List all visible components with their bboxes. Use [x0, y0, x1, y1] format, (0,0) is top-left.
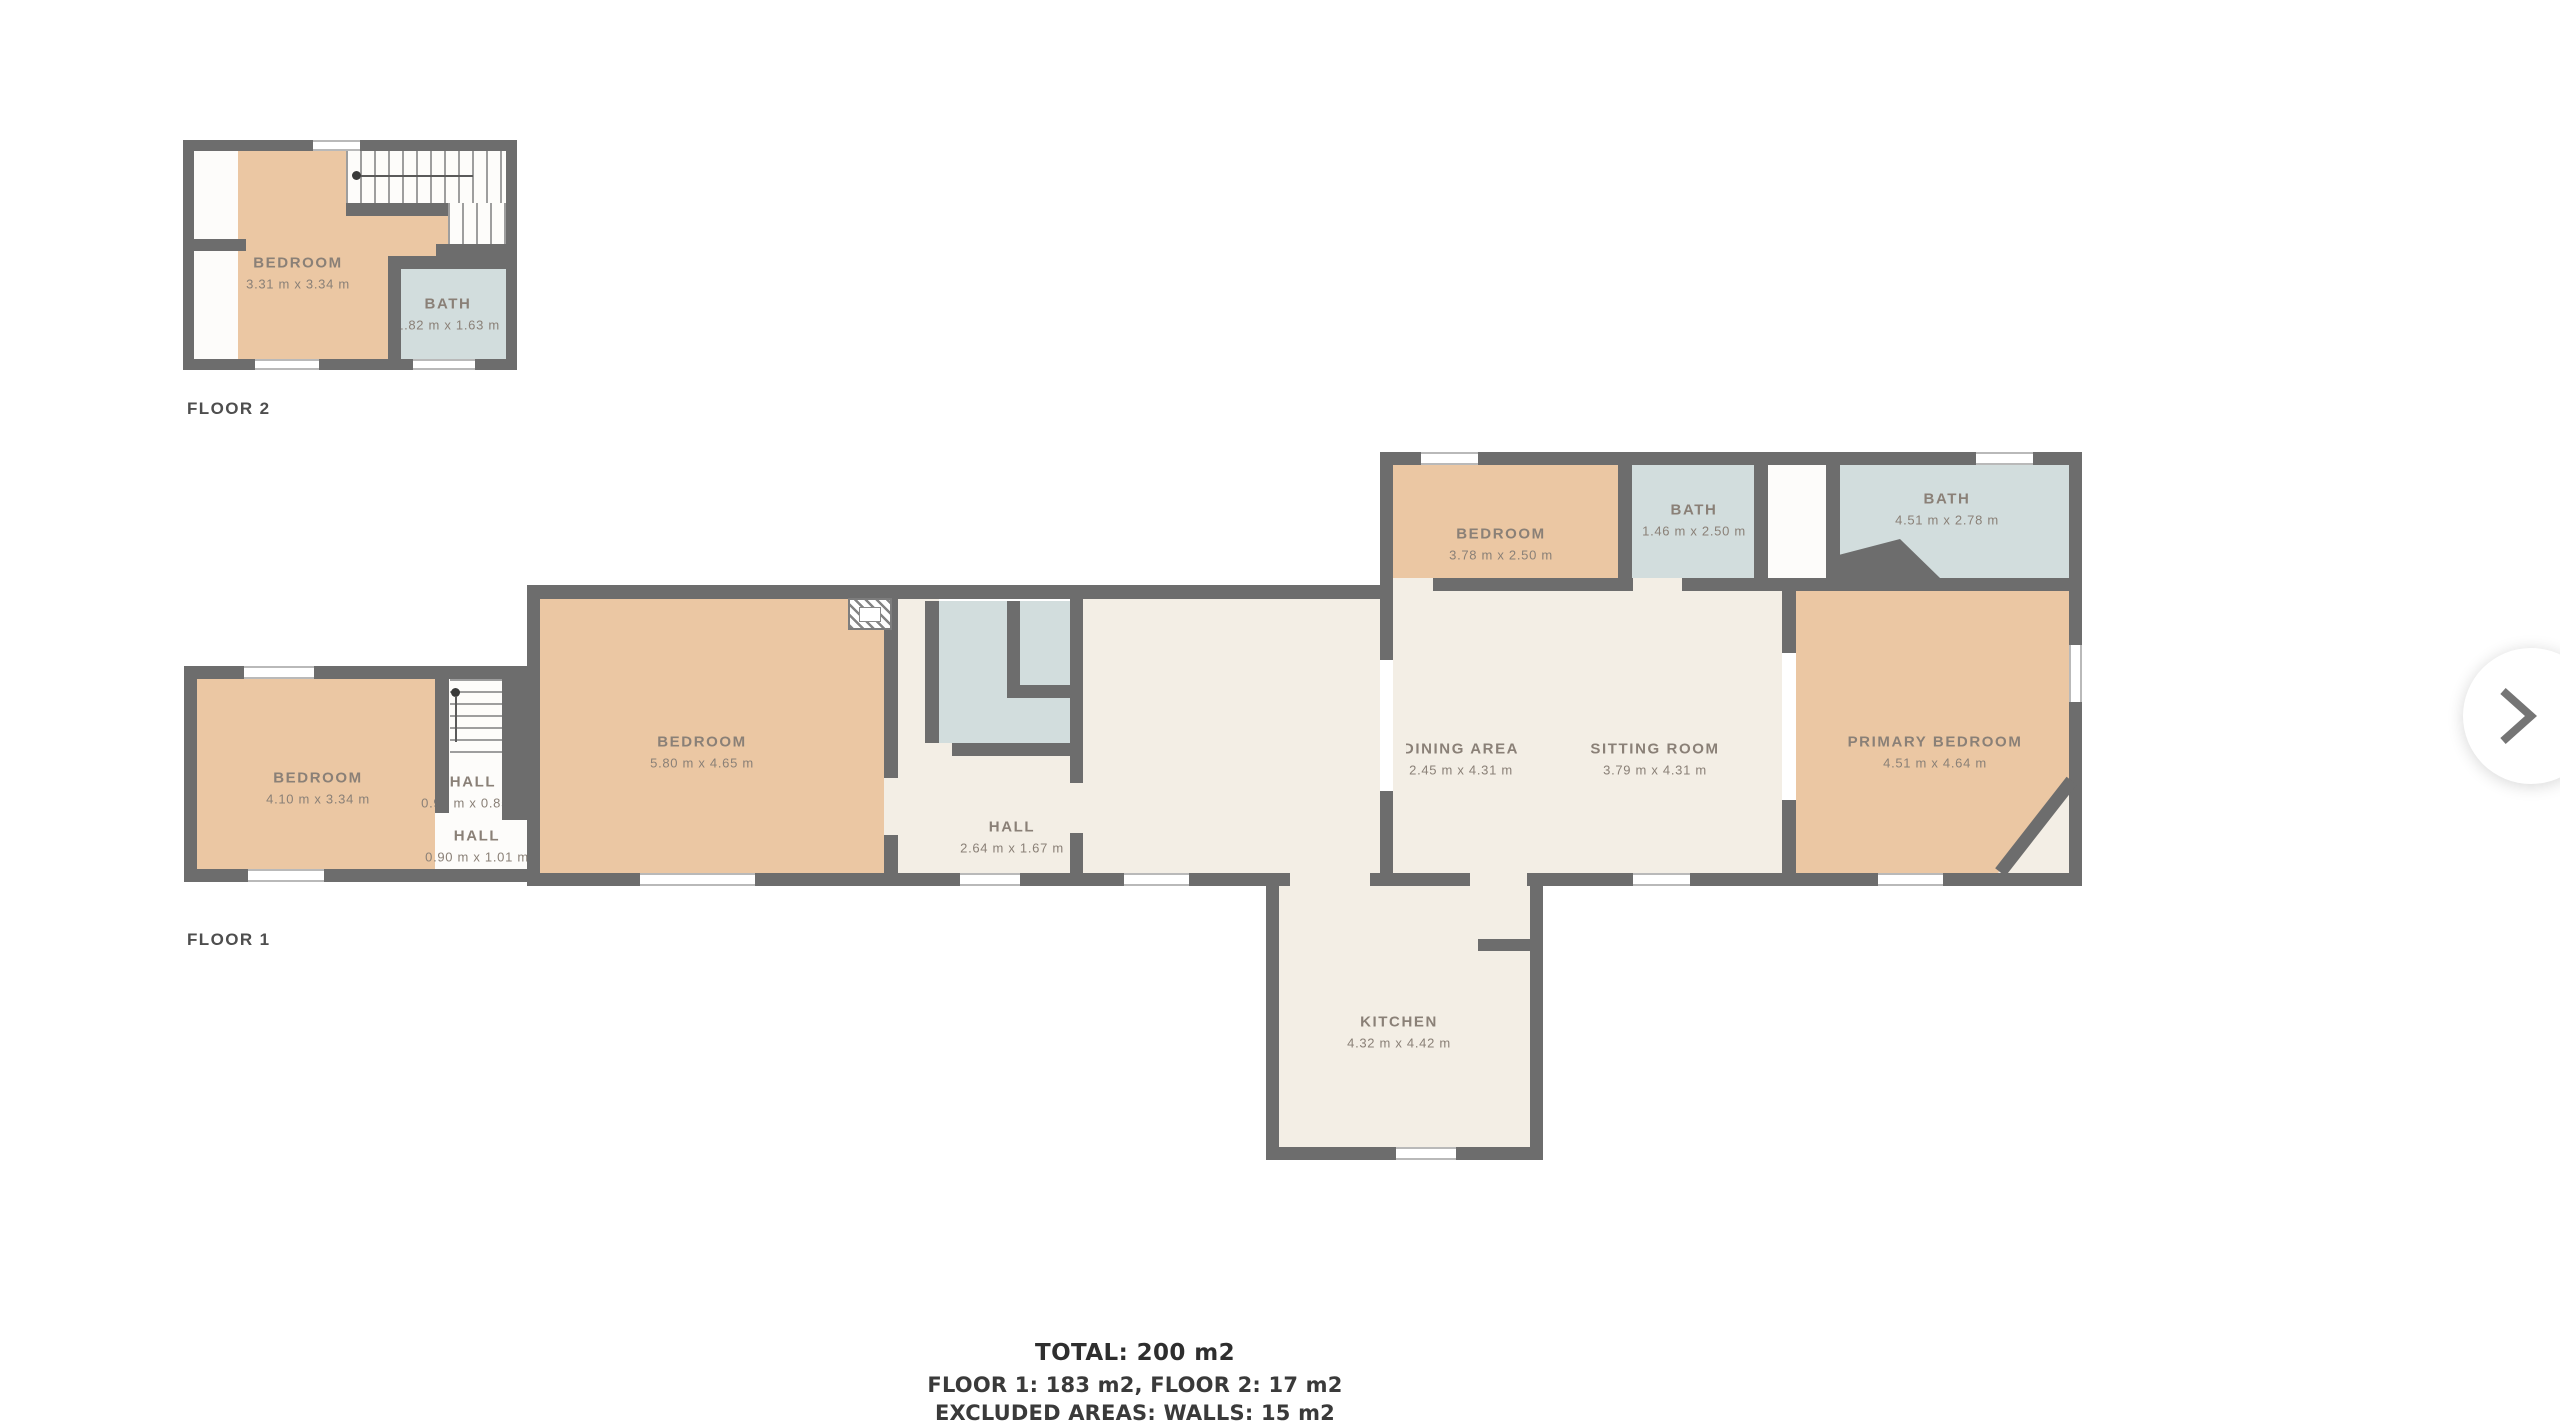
room-dims: 2.45 m x 4.31 m	[1409, 763, 1513, 778]
door-opening	[1633, 578, 1682, 591]
door-opening	[884, 778, 898, 835]
wall	[1826, 465, 1840, 578]
room-name: DINING AREA	[1403, 741, 1519, 758]
summary-floors: FLOOR 1: 183 m2, FLOOR 2: 17 m2	[735, 1373, 1535, 1397]
floor1-caption: FLOOR 1	[187, 930, 270, 950]
window-opening	[1976, 452, 2033, 465]
room-name: BEDROOM	[253, 255, 343, 272]
wall	[527, 585, 540, 679]
chevron-right-icon	[2491, 681, 2543, 751]
door-opening	[1290, 873, 1370, 886]
room-label: KITCHEN 4.32 m x 4.42 m	[1347, 1014, 1451, 1051]
room-label: HALL 2.64 m x 1.67 m	[960, 819, 1064, 856]
room-dims: 5.80 m x 4.65 m	[650, 756, 754, 771]
room-bedroom-f2	[346, 256, 388, 359]
room-label: BATH 1.46 m x 2.50 m	[1642, 502, 1746, 539]
wall	[952, 743, 1070, 756]
room-name: BATH	[425, 296, 472, 313]
room-name: SITTING ROOM	[1590, 741, 1719, 758]
floor2-caption: FLOOR 2	[187, 399, 270, 419]
stair-direction-dot	[352, 171, 361, 180]
wall	[194, 239, 246, 251]
wall	[1070, 743, 1083, 783]
door-opening	[1393, 660, 1406, 791]
room-name: BEDROOM	[273, 770, 363, 787]
fireplace-icon	[848, 598, 892, 630]
room-dims: 3.31 m x 3.34 m	[246, 277, 350, 292]
room-name: PRIMARY BEDROOM	[1848, 734, 2023, 751]
wall	[388, 256, 506, 269]
room-label: DINING AREA 2.45 m x 4.31 m	[1403, 741, 1519, 778]
stair-void	[939, 601, 1070, 743]
wall	[1380, 791, 1393, 886]
wall	[1380, 591, 1393, 660]
room-dims: 0.90 m x 1.01 m	[425, 850, 529, 865]
window-opening	[413, 359, 475, 370]
room-label: BATH 4.51 m x 2.78 m	[1895, 491, 1999, 528]
room-dims: 1.46 m x 2.50 m	[1642, 524, 1746, 539]
area-summary: TOTAL: 200 m2 FLOOR 1: 183 m2, FLOOR 2: …	[735, 1340, 1535, 1428]
wall	[527, 585, 898, 599]
room-dims: 4.32 m x 4.42 m	[1347, 1036, 1451, 1051]
window-opening	[640, 873, 755, 886]
wall	[1618, 465, 1632, 578]
wall	[346, 203, 448, 216]
wall	[925, 601, 939, 743]
door-opening	[1470, 873, 1527, 886]
wall	[1478, 939, 1530, 951]
wall	[388, 269, 401, 359]
room-dims: 4.51 m x 2.78 m	[1895, 513, 1999, 528]
wall	[502, 666, 540, 820]
room-label: HALL 0.90 m x 1.01 m	[425, 828, 529, 865]
niche	[1768, 465, 1826, 578]
room-dims: 2.64 m x 1.67 m	[960, 841, 1064, 856]
room-label: BEDROOM 4.10 m x 3.34 m	[266, 770, 370, 807]
wall	[884, 835, 898, 873]
wall	[1266, 886, 1279, 1160]
room-dims: 3.78 m x 2.50 m	[1449, 548, 1553, 563]
wall	[1530, 886, 1543, 1160]
room-name: HALL	[989, 819, 1035, 836]
wall	[1007, 601, 1020, 698]
wall	[1754, 465, 1768, 578]
door-opening	[939, 743, 952, 756]
room-label: SITTING ROOM 3.79 m x 4.31 m	[1590, 741, 1719, 778]
door-opening	[1393, 578, 1433, 591]
room-label: BEDROOM 3.31 m x 3.34 m	[246, 255, 350, 292]
room-label: BATH 1.82 m x 1.63 m	[396, 296, 500, 333]
room-label: BEDROOM 5.80 m x 4.65 m	[650, 734, 754, 771]
room-name: HALL	[450, 774, 496, 791]
summary-excluded: EXCLUDED AREAS: WALLS: 15 m2	[735, 1401, 1535, 1425]
window-opening	[1633, 873, 1690, 886]
floorplan-viewer: BEDROOM 3.31 m x 3.34 m BATH 1.82 m x 1.…	[0, 0, 2560, 1428]
wall	[1070, 833, 1083, 873]
room-name: BEDROOM	[657, 734, 747, 751]
wall	[1782, 591, 1796, 653]
wall	[1070, 591, 1083, 743]
room-name: BEDROOM	[1456, 526, 1546, 543]
stairs	[448, 203, 506, 244]
floor2-plan: BEDROOM 3.31 m x 3.34 m BATH 1.82 m x 1.…	[183, 140, 517, 370]
room-label: BEDROOM 3.78 m x 2.50 m	[1449, 526, 1553, 563]
room-name: BATH	[1924, 491, 1971, 508]
window-opening	[248, 869, 324, 882]
wall	[1007, 685, 1070, 698]
stair-direction-line	[361, 175, 473, 177]
wall	[435, 679, 449, 813]
wall	[1380, 452, 1393, 591]
room-label: PRIMARY BEDROOM 4.51 m x 4.64 m	[1848, 734, 2023, 771]
floor1-plan: BEDROOM 4.10 m x 3.34 m HALL 0.92 m x 0.…	[184, 452, 2082, 1160]
wall	[184, 666, 197, 882]
wall	[1380, 578, 2082, 591]
fireplace-inner	[859, 607, 881, 622]
wall	[898, 585, 1380, 599]
room-dims: 4.51 m x 4.64 m	[1883, 756, 1987, 771]
window-opening	[1396, 1147, 1456, 1160]
door-opening	[1070, 783, 1083, 833]
window-opening	[244, 666, 314, 679]
stair-direction-line	[455, 696, 457, 742]
summary-total: TOTAL: 200 m2	[735, 1340, 1535, 1366]
window-opening	[1878, 873, 1943, 886]
room-name: BATH	[1671, 502, 1718, 519]
closet	[194, 151, 238, 239]
room-dining-sitting	[1393, 591, 1782, 873]
wall	[184, 666, 540, 679]
open-area	[1083, 598, 1380, 873]
room-name: HALL	[454, 828, 500, 845]
room-dims: 3.79 m x 4.31 m	[1603, 763, 1707, 778]
window-opening	[2069, 645, 2082, 702]
window-opening	[960, 873, 1020, 886]
room-name: KITCHEN	[1360, 1014, 1438, 1031]
window-opening	[255, 359, 319, 370]
wall	[1782, 800, 1796, 873]
room-bedroom-f2	[346, 216, 448, 256]
room-dims: 4.10 m x 3.34 m	[266, 792, 370, 807]
window-opening	[1421, 452, 1478, 465]
wall	[184, 869, 540, 882]
window-opening	[313, 140, 360, 151]
wall	[436, 244, 506, 256]
next-image-button[interactable]	[2463, 648, 2560, 784]
room-dims: 1.82 m x 1.63 m	[396, 318, 500, 333]
window-opening	[1124, 873, 1189, 886]
stairs	[346, 151, 506, 203]
